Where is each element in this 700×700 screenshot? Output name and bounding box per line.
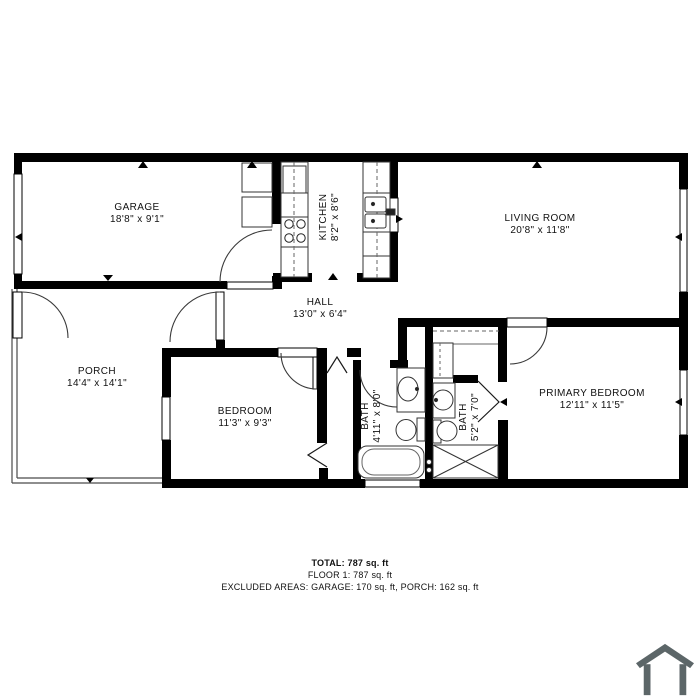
bedroom-closet-chevron bbox=[308, 443, 327, 467]
floor-plan-page: GARAGE 18'8" x 9'1" KITCHEN 8'2" x 8'6" … bbox=[0, 0, 700, 700]
bedroom-door-header bbox=[278, 348, 317, 357]
room-dims: 14'4" x 14'1" bbox=[67, 378, 127, 390]
bath1-toilet-icon bbox=[396, 418, 425, 441]
bedroom-door-arc bbox=[281, 353, 317, 389]
garage-door-leaf bbox=[227, 282, 273, 289]
room-label-kitchen: KITCHEN 8'2" x 8'6" bbox=[318, 193, 342, 241]
bedroom-window bbox=[162, 397, 170, 440]
room-label-living-room: LIVING ROOM 20'8" x 11'8" bbox=[504, 213, 575, 237]
room-label-porch: PORCH 14'4" x 14'1" bbox=[67, 366, 127, 390]
porch-side-door-leaf bbox=[13, 292, 22, 338]
linen-closet bbox=[433, 343, 453, 378]
room-name: BEDROOM bbox=[218, 406, 272, 418]
room-label-bath2: BATH 5'2" x 7'0" bbox=[458, 393, 482, 441]
summary-floor1: FLOOR 1: 787 sq. ft bbox=[0, 569, 700, 581]
room-label-garage: GARAGE 18'8" x 9'1" bbox=[110, 202, 164, 226]
washer-dryer-icon bbox=[242, 163, 272, 227]
room-label-bath1: BATH 4'11" x 8'0" bbox=[360, 389, 384, 442]
hall-closet-chevron bbox=[327, 357, 347, 373]
room-name: PRIMARY BEDROOM bbox=[539, 388, 645, 400]
tub-fixture bbox=[427, 460, 432, 465]
room-label-bedroom: BEDROOM 11'3" x 9'3" bbox=[218, 406, 272, 430]
primary-bedroom-door-arc bbox=[510, 327, 547, 364]
house-icon bbox=[636, 641, 694, 699]
bath2-toilet-icon bbox=[433, 420, 457, 443]
porch-side-door-arc bbox=[22, 292, 68, 338]
room-name: HALL bbox=[293, 297, 347, 309]
room-label-primary-bedroom: PRIMARY BEDROOM 12'11" x 11'5" bbox=[539, 388, 645, 412]
room-dims: 8'2" x 8'6" bbox=[330, 193, 342, 241]
room-dims: 18'8" x 9'1" bbox=[110, 214, 164, 226]
room-dims: 12'11" x 11'5" bbox=[539, 400, 645, 412]
room-dims: 4'11" x 8'0" bbox=[372, 389, 384, 442]
garage-window bbox=[14, 174, 22, 274]
bedroom-door-leaf bbox=[313, 357, 317, 389]
room-name: PORCH bbox=[67, 366, 127, 378]
room-dims: 13'0" x 6'4" bbox=[293, 309, 347, 321]
tub-fixture bbox=[427, 468, 432, 473]
garage-door-arc bbox=[220, 230, 272, 282]
room-dims: 5'2" x 7'0" bbox=[470, 393, 482, 441]
primary-bedroom-door-header bbox=[507, 318, 547, 327]
room-name: LIVING ROOM bbox=[504, 213, 575, 225]
living-room-window bbox=[680, 189, 687, 292]
porch-hall-door-leaf bbox=[216, 292, 224, 340]
porch-hall-door-arc bbox=[170, 292, 220, 342]
area-summary: TOTAL: 787 sq. ft FLOOR 1: 787 sq. ft EX… bbox=[0, 557, 700, 593]
room-dims: 20'8" x 11'8" bbox=[504, 225, 575, 237]
floor-plan-drawing bbox=[0, 0, 700, 700]
shower-icon bbox=[433, 445, 498, 478]
bathtub-icon bbox=[358, 446, 424, 478]
room-name: BATH bbox=[458, 393, 470, 441]
summary-total: TOTAL: 787 sq. ft bbox=[0, 557, 700, 569]
room-label-hall: HALL 13'0" x 6'4" bbox=[293, 297, 347, 321]
room-name: KITCHEN bbox=[318, 193, 330, 241]
room-name: GARAGE bbox=[110, 202, 164, 214]
room-name: BATH bbox=[360, 389, 372, 442]
room-dims: 11'3" x 9'3" bbox=[218, 418, 272, 430]
bath-window bbox=[365, 480, 420, 487]
faucet-icon bbox=[386, 209, 395, 215]
summary-excluded: EXCLUDED AREAS: GARAGE: 170 sq. ft, PORC… bbox=[0, 581, 700, 593]
